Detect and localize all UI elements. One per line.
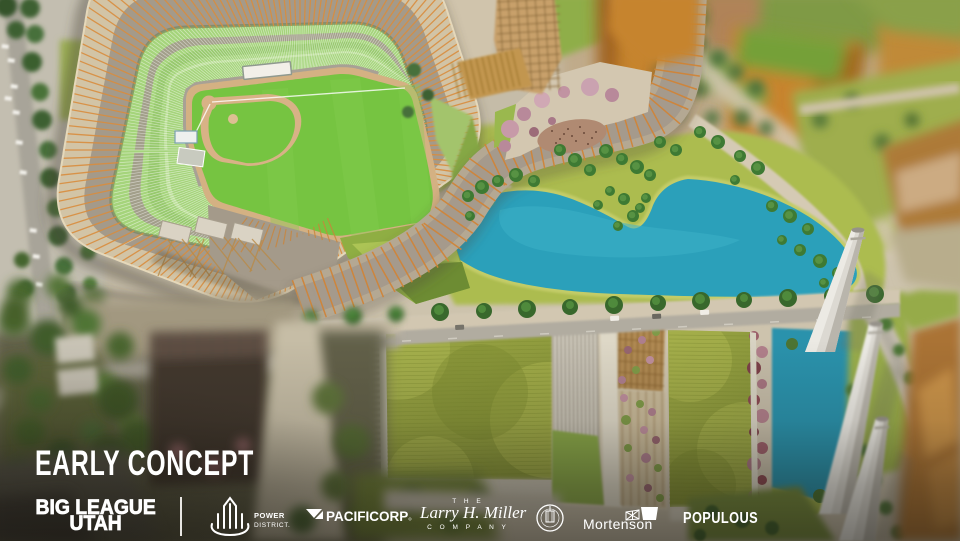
svg-text:DISTRICT.: DISTRICT. — [254, 522, 290, 529]
svg-text:POWER: POWER — [254, 511, 285, 520]
svg-text:PACIFICORP: PACIFICORP — [326, 509, 408, 524]
